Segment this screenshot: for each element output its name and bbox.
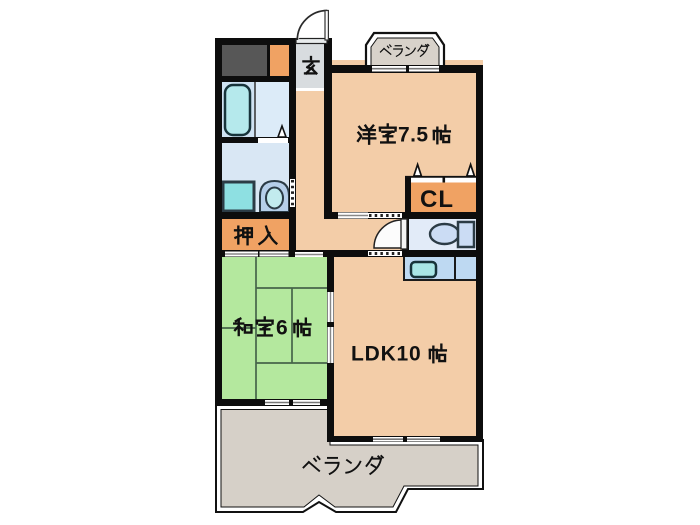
svg-text:CL: CL — [420, 186, 454, 213]
svg-text:6: 6 — [276, 317, 288, 340]
svg-text:LDK10: LDK10 — [351, 343, 422, 366]
svg-text:7.5: 7.5 — [398, 124, 428, 147]
